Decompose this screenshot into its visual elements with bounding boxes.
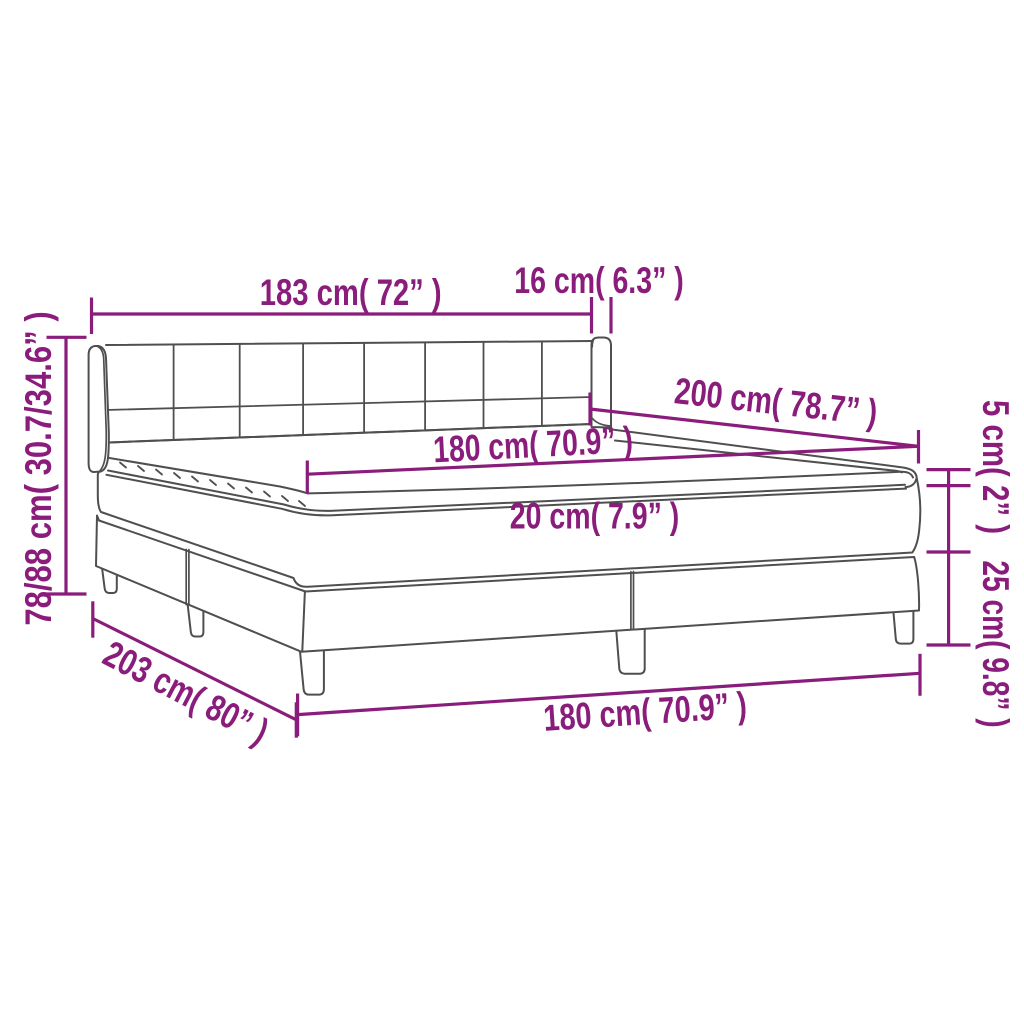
svg-text:183 cm( 72” ): 183 cm( 72” ) <box>260 273 442 314</box>
svg-text:20 cm( 7.9” ): 20 cm( 7.9” ) <box>510 495 679 536</box>
svg-text:78/88 cm( 30.7/34.6” ): 78/88 cm( 30.7/34.6” ) <box>19 311 60 625</box>
svg-text:16 cm( 6.3” ): 16 cm( 6.3” ) <box>514 260 683 301</box>
svg-text:25 cm( 9.8” ): 25 cm( 9.8” ) <box>975 560 1017 727</box>
svg-text:5 cm( 2” ): 5 cm( 2” ) <box>974 400 1015 534</box>
